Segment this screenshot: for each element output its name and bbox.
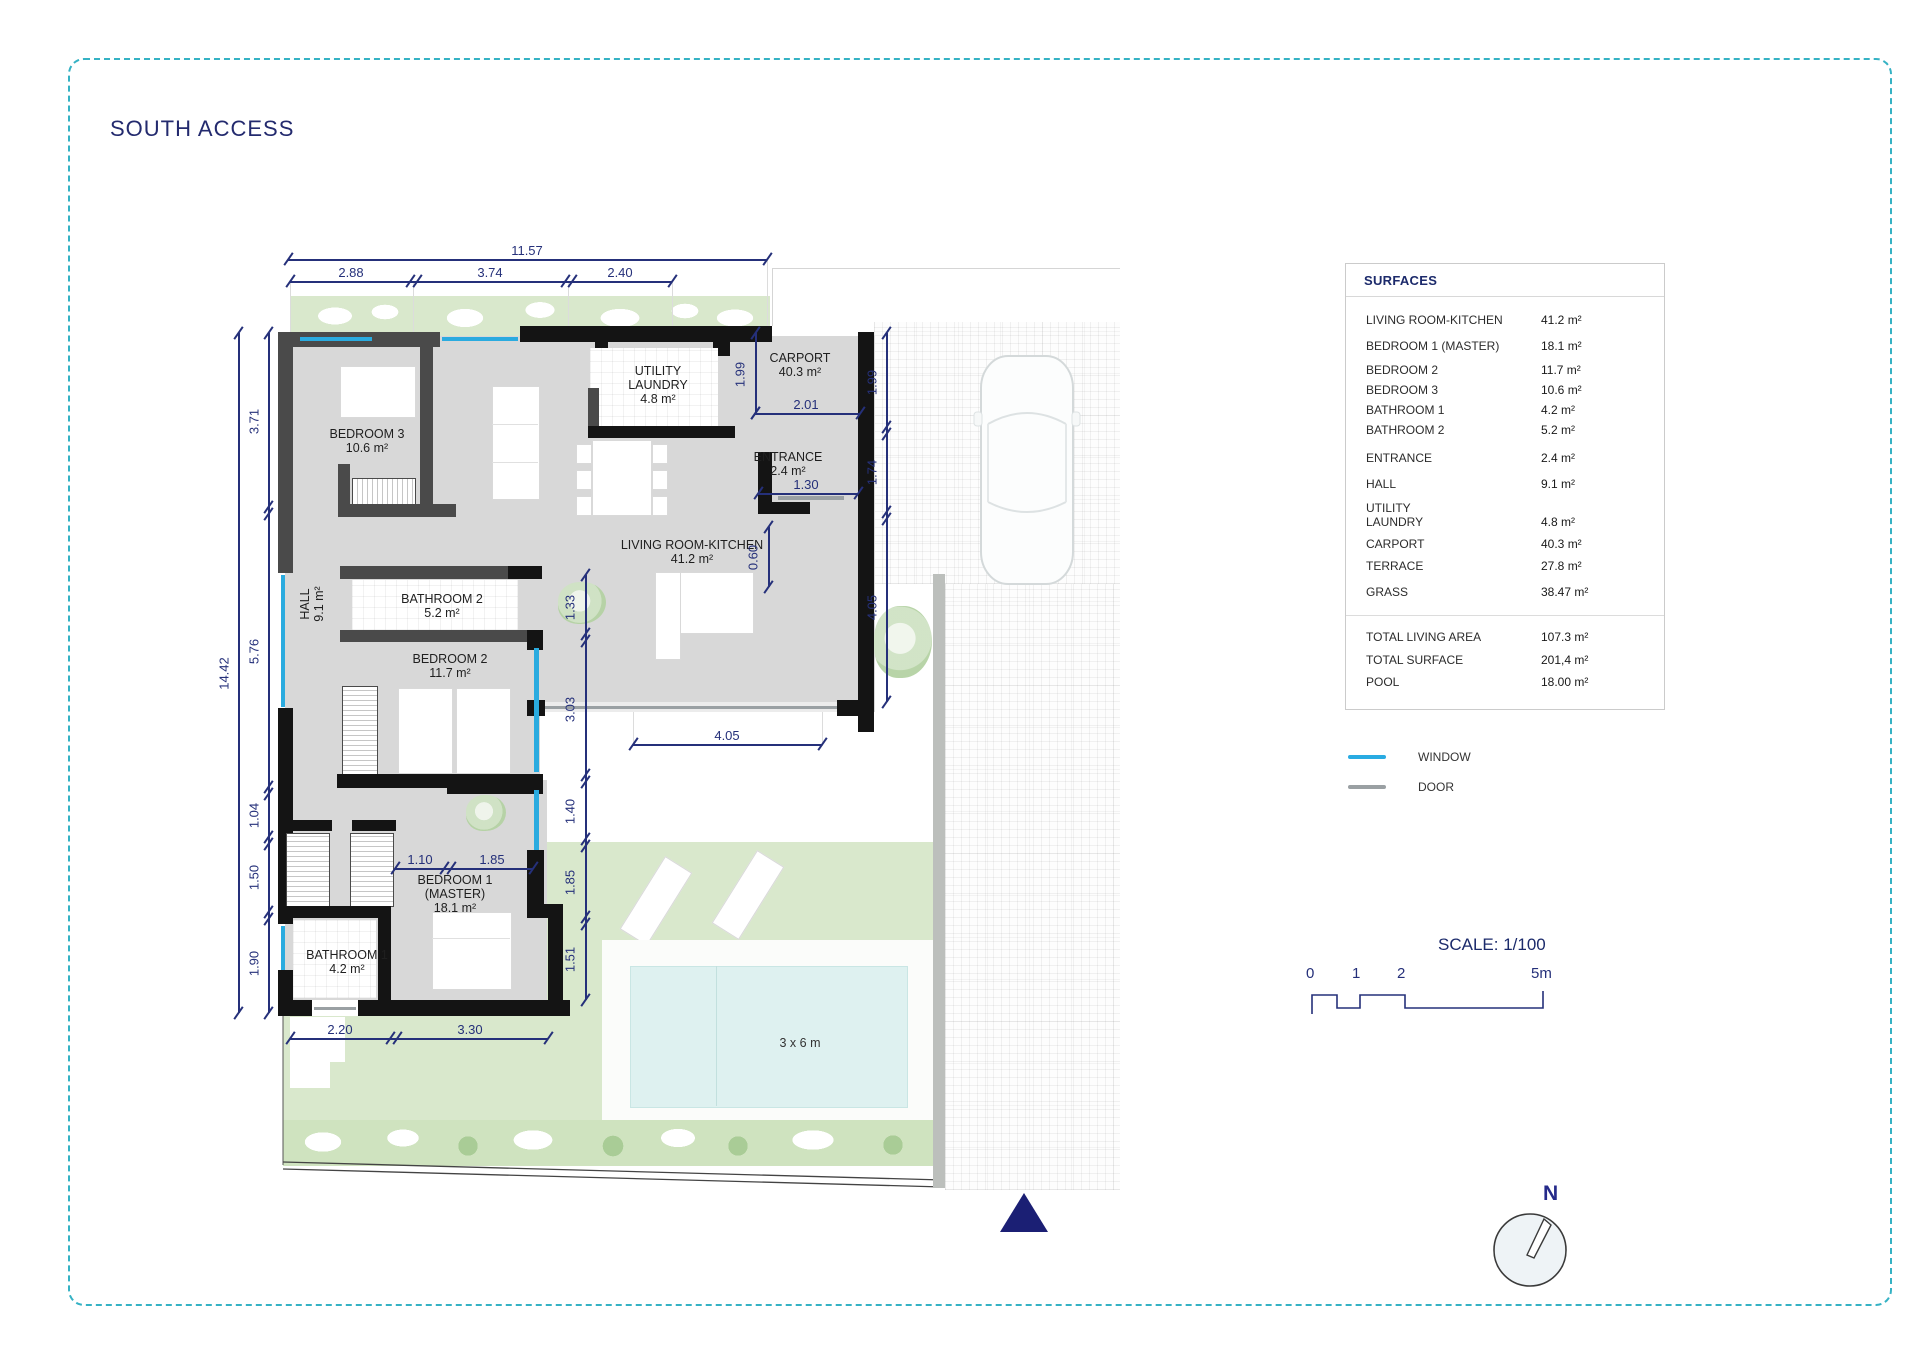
sofa-chaise	[655, 572, 681, 660]
car-icon	[972, 350, 1082, 590]
surface-row: GRASS38.47 m²	[1366, 585, 1648, 599]
surface-value: 4.8 m²	[1541, 515, 1575, 529]
surface-label: HALL	[1366, 477, 1541, 491]
wall-closet-pier	[284, 820, 332, 831]
room-label-bedroom2: BEDROOM 2 11.7 m²	[370, 652, 530, 680]
surface-value: 10.6 m²	[1541, 383, 1582, 397]
surface-value: 9.1 m²	[1541, 477, 1575, 491]
surface-row: BEDROOM 310.6 m²	[1366, 383, 1648, 397]
dim-label: 5.76	[247, 620, 262, 684]
dim-line	[755, 333, 757, 413]
scale-tick-0: 0	[1306, 965, 1314, 982]
surface-value: 18.1 m²	[1541, 339, 1582, 353]
dim-label: 3.03	[563, 678, 578, 742]
surface-label: UTILITY LAUNDRY	[1366, 501, 1461, 529]
surface-row: CARPORT40.3 m²	[1366, 537, 1648, 551]
surface-value: 18.00 m²	[1541, 675, 1588, 689]
room-name: BEDROOM 3	[287, 427, 447, 441]
surface-value: 4.2 m²	[1541, 403, 1575, 417]
room-name: BEDROOM 1	[375, 873, 535, 887]
surface-value: 201,4 m²	[1541, 653, 1588, 667]
surface-label: POOL	[1366, 675, 1541, 689]
dim-label: 1.99	[733, 343, 748, 407]
dim-label: 2.01	[774, 397, 838, 412]
room-area: 4.2 m²	[267, 962, 427, 976]
room-name: UTILITY	[578, 364, 738, 378]
dim-line	[238, 333, 240, 1013]
dim-label: 1.90	[247, 932, 262, 996]
projection-line	[767, 260, 768, 326]
scale-tick-1: 1	[1352, 965, 1360, 982]
dim-line	[395, 868, 533, 870]
surface-row: LIVING ROOM-KITCHEN41.2 m²	[1366, 313, 1648, 327]
surface-value: 11.7 m²	[1541, 363, 1581, 377]
wall-bathroom1-north	[284, 906, 382, 918]
surface-label: BEDROOM 1 (MASTER)	[1366, 339, 1541, 353]
room-area: 2.4 m²	[708, 464, 868, 478]
dim-line	[755, 413, 860, 415]
dining-chair	[652, 470, 668, 490]
door-entrance	[778, 496, 844, 500]
scale-bar: SCALE: 1/100 0 1 2 5m	[1300, 935, 1580, 1025]
dim-label: 1.04	[247, 784, 262, 848]
surfaces-body: LIVING ROOM-KITCHEN41.2 m² BEDROOM 1 (MA…	[1346, 297, 1664, 709]
room-area: 9.1 m²	[312, 564, 326, 644]
kitchen-island-line	[492, 462, 538, 463]
projection-line	[290, 282, 291, 332]
room-label-entrance: ENTRANCE 2.4 m²	[708, 450, 868, 478]
dining-chair	[652, 496, 668, 516]
scale-bar-graphic	[1300, 985, 1580, 1025]
dim-label: 2.40	[588, 265, 652, 280]
wardrobe-master	[286, 833, 330, 907]
wall-utility-south	[588, 426, 735, 438]
window-bedroom3-north	[300, 337, 372, 341]
room-area: 5.2 m²	[362, 606, 522, 620]
room-label-hall: HALL 9.1 m²	[298, 564, 326, 644]
room-label-bathroom2: BATHROOM 2 5.2 m²	[362, 592, 522, 620]
north-indicator: N	[1488, 1180, 1598, 1300]
surface-total-row: TOTAL SURFACE201,4 m²	[1366, 653, 1648, 667]
door-terrace-sliding	[545, 706, 837, 709]
surface-label: GRASS	[1366, 585, 1541, 599]
surfaces-header: SURFACES	[1346, 264, 1664, 297]
bed-master-line	[432, 938, 510, 939]
dim-label: 1.99	[865, 351, 880, 415]
south-access-marker	[1000, 1193, 1048, 1232]
surface-row: BATHROOM 25.2 m²	[1366, 423, 1648, 437]
dim-label: 11.57	[495, 243, 559, 258]
surface-label: BATHROOM 2	[1366, 423, 1541, 437]
dim-label: 0.60	[746, 526, 761, 590]
dim-label: 1.85	[460, 852, 524, 867]
room-name: (MASTER)	[375, 887, 535, 901]
dim-label: 1.33	[563, 576, 578, 640]
scale-tick-5m: 5m	[1531, 965, 1552, 982]
surface-label: CARPORT	[1366, 537, 1541, 551]
surface-label: ENTRANCE	[1366, 451, 1541, 465]
window-master-east	[534, 790, 539, 852]
wall-master-se	[548, 916, 563, 1014]
dim-label: 1.51	[563, 928, 578, 992]
surface-row: ENTRANCE2.4 m²	[1366, 451, 1648, 465]
legend-window-label: WINDOW	[1418, 750, 1471, 764]
dim-line	[288, 259, 767, 261]
wall-bathroom2-north	[340, 566, 510, 579]
bed-bedroom3	[340, 366, 416, 418]
carport-boundary-line	[772, 268, 1120, 269]
dim-label: 1.30	[774, 477, 838, 492]
legend: WINDOW DOOR	[1348, 750, 1471, 794]
projection-line	[672, 282, 673, 326]
surfaces-divider	[1346, 615, 1664, 616]
dim-line	[758, 493, 858, 495]
dim-label: 14.42	[217, 642, 232, 706]
surface-row: HALL9.1 m²	[1366, 477, 1648, 491]
surface-label: TOTAL LIVING AREA	[1366, 630, 1541, 644]
scale-tick-2: 2	[1397, 965, 1405, 982]
surface-value: 27.8 m²	[1541, 559, 1582, 573]
window-bedroom2-east	[534, 648, 539, 772]
dim-line	[768, 527, 770, 587]
room-name: BATHROOM 1	[267, 948, 427, 962]
dim-line	[290, 1038, 548, 1040]
dim-line	[633, 744, 822, 746]
room-name: BEDROOM 2	[370, 652, 530, 666]
room-name: HALL	[298, 564, 312, 644]
window-legend-line	[1348, 755, 1386, 759]
wall-lowerwing-ne	[527, 630, 543, 650]
wardrobe-bedroom3	[352, 478, 416, 505]
wall-bathroom2-south	[340, 630, 540, 642]
room-name: LAUNDRY	[578, 378, 738, 392]
dim-label: 1.85	[563, 851, 578, 915]
room-label-utility: UTILITY LAUNDRY 4.8 m²	[578, 364, 738, 406]
tree	[874, 606, 932, 678]
projection-line	[413, 282, 414, 332]
wall-carport-beam	[520, 326, 772, 342]
surface-label: LIVING ROOM-KITCHEN	[1366, 313, 1541, 327]
room-label-master: BEDROOM 1 (MASTER) 18.1 m²	[375, 873, 535, 915]
surface-value: 2.4 m²	[1541, 451, 1575, 465]
garden-curb	[933, 574, 945, 1188]
bed-bedroom2	[398, 688, 453, 774]
surfaces-panel: SURFACES LIVING ROOM-KITCHEN41.2 m² BEDR…	[1345, 263, 1665, 710]
wall-bathroom2-north-pier	[508, 566, 542, 579]
wall-closet-pier	[352, 820, 396, 831]
porch-step	[290, 1060, 330, 1088]
wall-pier-se-living	[837, 700, 874, 716]
dining-chair	[576, 444, 592, 464]
wall-top-pier	[403, 332, 440, 347]
north-label: N	[1543, 1182, 1558, 1206]
surface-row: BEDROOM 1 (MASTER)18.1 m²	[1366, 339, 1648, 353]
door-legend-line	[1348, 785, 1386, 789]
dim-label: 3.30	[438, 1022, 502, 1037]
surface-row: UTILITY LAUNDRY4.8 m²	[1366, 501, 1648, 529]
sofa	[676, 572, 754, 634]
dining-chair	[576, 470, 592, 490]
scale-label: SCALE: 1/100	[1438, 935, 1546, 955]
dim-label: 3.71	[247, 390, 262, 454]
wall-entrance-nib-h	[758, 502, 810, 514]
surface-label: BEDROOM 2	[1366, 363, 1541, 377]
dim-label: 1.74	[865, 441, 880, 505]
bed-master	[432, 912, 512, 990]
dim-label: 2.88	[319, 265, 383, 280]
window-hall-west	[281, 575, 285, 707]
dim-line	[290, 281, 672, 283]
legend-door-label: DOOR	[1418, 780, 1454, 794]
room-area: 4.8 m²	[578, 392, 738, 406]
surface-label: BEDROOM 3	[1366, 383, 1541, 397]
wall-bedroom2-south-ext	[447, 786, 543, 794]
surface-row: BATHROOM 14.2 m²	[1366, 403, 1648, 417]
room-area: 11.7 m²	[370, 666, 530, 680]
room-area: 10.6 m²	[287, 441, 447, 455]
dim-label: 1.50	[247, 846, 262, 910]
compass-icon	[1488, 1204, 1578, 1294]
dim-label: 3.74	[458, 265, 522, 280]
surface-value: 107.3 m²	[1541, 630, 1588, 644]
surface-total-row: POOL18.00 m²	[1366, 675, 1648, 689]
wall-bedroom3-south	[338, 504, 456, 517]
surface-label: TERRACE	[1366, 559, 1541, 573]
kitchen-island	[492, 386, 540, 500]
wall-west-mid	[278, 510, 293, 573]
carport-boundary-line-v	[772, 268, 773, 326]
surface-value: 38.47 m²	[1541, 585, 1588, 599]
surface-total-row: TOTAL LIVING AREA107.3 m²	[1366, 630, 1648, 644]
surface-row: BEDROOM 211.7 m²	[1366, 363, 1648, 377]
driveway-paving-lower	[945, 584, 1120, 1190]
room-label-bathroom1: BATHROOM 1 4.2 m²	[267, 948, 427, 976]
dining-chair	[576, 496, 592, 516]
room-area: 18.1 m²	[375, 901, 535, 915]
kitchen-island-line	[492, 424, 538, 425]
room-label-bedroom3: BEDROOM 3 10.6 m²	[287, 427, 447, 455]
surface-label: BATHROOM 1	[1366, 403, 1541, 417]
dining-chair	[652, 444, 668, 464]
dim-label: 4.05	[865, 576, 880, 640]
surface-value: 40.3 m²	[1541, 537, 1582, 551]
bed-bedroom2	[456, 688, 511, 774]
dim-label: 1.40	[563, 780, 578, 844]
room-name: BATHROOM 2	[362, 592, 522, 606]
projection-line	[568, 282, 569, 326]
surface-row: TERRACE27.8 m²	[1366, 559, 1648, 573]
room-name: ENTRANCE	[708, 450, 868, 464]
surface-value: 41.2 m²	[1541, 313, 1582, 327]
door-south	[314, 1007, 356, 1010]
dining-table	[592, 440, 652, 516]
surface-label: TOTAL SURFACE	[1366, 653, 1541, 667]
wall-west-upper	[278, 332, 293, 510]
dim-label: 2.20	[308, 1022, 372, 1037]
wardrobe-bedroom2	[342, 686, 378, 776]
window-kitchen-north	[442, 337, 518, 341]
dim-label: 1.10	[388, 852, 452, 867]
surface-value: 5.2 m²	[1541, 423, 1575, 437]
dim-label: 4.05	[695, 728, 759, 743]
